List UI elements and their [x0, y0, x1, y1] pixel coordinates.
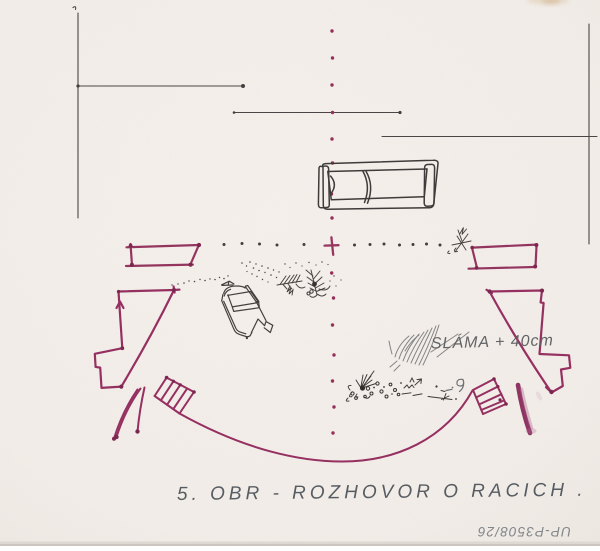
svg-text:5. OBR - ROZHOVOR O RACICH: 5. OBR - ROZHOVOR O RACICH . [177, 480, 587, 505]
svg-text:UP-P3508/26: UP-P3508/26 [477, 524, 571, 539]
